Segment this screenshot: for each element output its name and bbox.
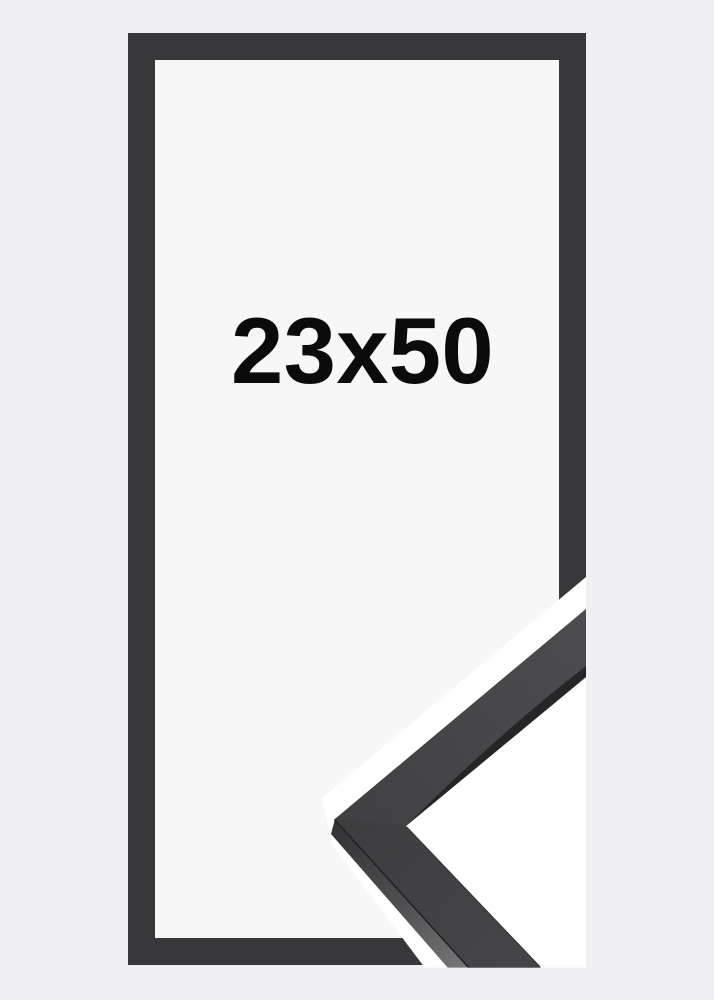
svg-text:23x50: 23x50	[231, 298, 494, 403]
